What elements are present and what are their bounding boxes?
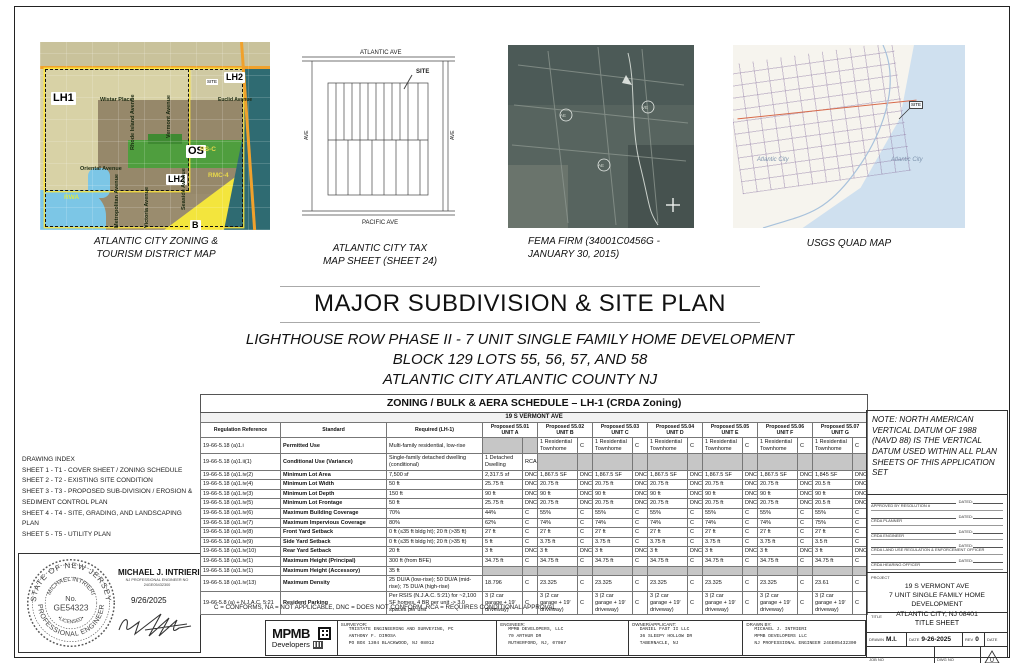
proposed-value: 3 ft: [593, 547, 633, 557]
proposed-value: 44%: [483, 509, 523, 519]
approval-label: CRDA HEARING OFFICER: [871, 563, 1003, 570]
zoning-table-address: 19 S VERMONT AVE: [201, 412, 868, 422]
engineer-line: RUTHERFORD, NJ, 07087: [508, 641, 625, 648]
proposed-value: 3 (2 car garage + 19' driveway): [703, 592, 743, 615]
zoning-map-caption: ATLANTIC CITY ZONING & TOURISM DISTRICT …: [75, 236, 237, 261]
table-col-header: Standard: [281, 422, 387, 437]
svg-text:AE: AE: [598, 163, 604, 168]
conformance-status: C: [798, 576, 813, 592]
proposed-value: 25.75 ft: [483, 499, 523, 509]
proposed-value: 74%: [703, 518, 743, 528]
svg-text:•LICENSED•: •LICENSED•: [56, 615, 85, 625]
approval-block: DATED:CRDA PLANNER: [871, 512, 1003, 526]
proposed-value: 1,867.5 SF: [648, 470, 688, 480]
approval-block: DATED:CRDA LAND USE REGULATION & ENFORCE…: [871, 541, 1003, 555]
proposed-value: 3.75 ft: [758, 537, 798, 547]
surveyor-line: TRISTATE ENGINEERING AND SURVEYING, PC: [349, 627, 493, 634]
proposed-value: 23.325: [648, 576, 688, 592]
tax-map: ATLANTIC AVE PACIFIC AVE SITE AVE AVE: [300, 45, 457, 227]
conformance-status: C: [633, 592, 648, 615]
tax-map-pacific-ave: PACIFIC AVE: [362, 220, 398, 226]
conformance-status: C: [688, 592, 703, 615]
table-row: 19-66-5.18 (a)1.iv(1)Maximum Height (Acc…: [201, 566, 868, 576]
owner-line: TABERNACLE, NJ: [640, 641, 740, 648]
conformance-status: C: [633, 438, 648, 454]
proposed-value: 74%: [648, 518, 688, 528]
proposed-value: 3.75 ft: [593, 537, 633, 547]
conformance-status: DNC: [523, 489, 538, 499]
proposed-value: 20.75 ft: [703, 480, 743, 490]
proposed-value: 20.75 ft: [648, 480, 688, 490]
engineer-line: 70 ARTHUR DR: [508, 634, 625, 641]
conformance-status: DNC: [578, 547, 593, 557]
tax-map-left-ave: AVE: [304, 130, 310, 140]
table-row: 19-66-5.18 (a)1.iv(13)Maximum Density25 …: [201, 576, 868, 592]
job-number-row: JOB NO202505 DWG NOT1 0: [867, 647, 1007, 663]
proposed-value: 20.75 ft: [538, 499, 578, 509]
conformance-status: C: [633, 509, 648, 519]
conformance-status: C: [578, 518, 593, 528]
sheet-title-block: TITLE TITLE SHEET: [867, 613, 1007, 633]
drawn-by-info: DRAWN BY:MICHAEL J. INTRIERIMPMB DEVELOP…: [743, 621, 865, 655]
proposed-value: 23.325: [538, 576, 578, 592]
zoning-map: LH1 LH2 OS LH2 B SITE Wistar Place Eucli…: [40, 42, 270, 230]
conformance-status: C: [688, 528, 703, 538]
conformance-status: C: [798, 556, 813, 566]
conformance-status: DNC: [743, 489, 758, 499]
conformance-status: C: [633, 576, 648, 592]
drawing-index-item: SHEET 1 - T1 - COVER SHEET / ZONING SCHE…: [22, 466, 200, 477]
drawing-index: DRAWING INDEX SHEET 1 - T1 - COVER SHEET…: [22, 455, 200, 541]
proposed-value: 20.5 ft: [813, 480, 853, 490]
conformance-status: C: [578, 556, 593, 566]
conformance-status: C: [578, 528, 593, 538]
table-row: 19-66-5.18 (a)1.iv(3)Minimum Lot Depth15…: [201, 489, 868, 499]
conformance-status: C: [688, 537, 703, 547]
approval-label: APPROVED BY RESOLUTION #: [871, 504, 1003, 511]
proposed-value: 23.325: [593, 576, 633, 592]
conformance-status: DNC: [743, 547, 758, 557]
owner-line: DANIEL FAST II LLC: [640, 627, 740, 634]
conformance-status: C: [523, 528, 538, 538]
drawn_by-line: MPMB DEVELOPERS LLC: [754, 634, 862, 641]
usgs-city-label-2: Atlantic City: [891, 157, 923, 163]
conformance-status: DNC: [798, 480, 813, 490]
proposed-value: 1,867.5 SF: [538, 470, 578, 480]
zone-label-lh1: LH1: [51, 92, 76, 105]
conformance-status: DNC: [798, 470, 813, 480]
conformance-status: C: [523, 518, 538, 528]
conformance-status: DNC: [578, 489, 593, 499]
proposed-value: 3 ft: [758, 547, 798, 557]
drawn_by-line: NJ PROFESSIONAL ENGINEER 24GE05432300: [754, 641, 862, 648]
table-col-header: Regulation Reference: [201, 422, 281, 437]
proposed-value: 3.75 ft: [538, 537, 578, 547]
proposed-value: 27 ft: [703, 528, 743, 538]
conformance-status: DNC: [523, 547, 538, 557]
proposed-value: 90 ft: [813, 489, 853, 499]
table-row: 19-66-5.18 (a)1.iPermitted UseMulti-fami…: [201, 438, 868, 454]
proposed-value: 20.75 ft: [538, 480, 578, 490]
proposed-value: 74%: [593, 518, 633, 528]
table-row: 19-66-5.18 (a)1.iv(2)Minimum Lot Area7,5…: [201, 470, 868, 480]
proposed-value: 3.75 ft: [648, 537, 688, 547]
proposed-value: 25.75 ft: [483, 480, 523, 490]
proposed-value: 90 ft: [648, 489, 688, 499]
table-unit-header: Proposed 55.05 UNIT E: [703, 422, 758, 437]
usgs-site-label: SITE: [909, 101, 923, 109]
conformance-status: DNC: [688, 480, 703, 490]
proposed-value: 55%: [758, 509, 798, 519]
delta-rev: 0: [990, 657, 994, 663]
conformance-status: C: [523, 509, 538, 519]
approval-signature-blocks: DATED:APPROVED BY RESOLUTION #DATED:CRDA…: [867, 495, 1007, 573]
conformance-status: C: [523, 576, 538, 592]
conformance-status: C: [743, 592, 758, 615]
conformance-status: C: [688, 509, 703, 519]
proposed-value: 1 Residential Townhome: [538, 438, 578, 454]
proposed-value: 90 ft: [593, 489, 633, 499]
conformance-status: C: [578, 509, 593, 519]
project-block: PROJECT 19 S VERMONT AVE 7 UNIT SINGLE F…: [867, 573, 1007, 613]
conformance-status: C: [743, 528, 758, 538]
conformance-status: DNC: [633, 470, 648, 480]
proposed-value: 55%: [703, 509, 743, 519]
proposed-value: 74%: [538, 518, 578, 528]
zone-label-rwa: RWA: [64, 194, 79, 201]
usgs-map: SITE Atlantic City Atlantic City: [733, 45, 965, 228]
drawing-index-item: SHEET 2 - T2 - EXISTING SITE CONDITION: [22, 476, 200, 487]
conformance-status: C: [633, 528, 648, 538]
conformance-status: C: [578, 592, 593, 615]
zone-label-rmc4: RMC-4: [208, 172, 229, 179]
revision-row: DRAWNM.I. DATE9-26-2025 REV0 DATE: [867, 633, 1007, 647]
fema-map-drawing: AEAEVE: [508, 45, 694, 228]
proposed-value: 27 ft: [538, 528, 578, 538]
proposed-value: 3.5 ft: [813, 537, 853, 547]
conformance-status: C: [688, 438, 703, 454]
conformance-status: DNC: [688, 547, 703, 557]
tax-map-caption: ATLANTIC CITY TAX MAP SHEET (SHEET 24): [315, 243, 445, 268]
table-col-header: Required (LH-1): [387, 422, 483, 437]
plan-sheet: LH1 LH2 OS LH2 B SITE Wistar Place Eucli…: [0, 0, 1024, 663]
conformance-status: DNC: [798, 489, 813, 499]
drawing-index-item: SHEET 4 - T4 - SITE, GRADING, AND LANDSC…: [22, 509, 200, 530]
conformance-status: DNC: [523, 499, 538, 509]
tax-map-atlantic-ave: ATLANTIC AVE: [360, 50, 401, 56]
conformance-status: C: [798, 537, 813, 547]
fema-map-caption: FEMA FIRM (34001C0456G - JANUARY 30, 201…: [528, 236, 708, 261]
conformance-status: RCA: [523, 454, 538, 470]
table-row: 19-66-5.18 (a)1.iv(9)Side Yard Setback0 …: [201, 537, 868, 547]
proposed-value: 55%: [813, 509, 853, 519]
proposed-value: 3 (2 car garage + 19' driveway): [758, 592, 798, 615]
proposed-value: 5 ft: [483, 537, 523, 547]
proposed-value: 20.75 ft: [758, 480, 798, 490]
conformance-status: DNC: [688, 499, 703, 509]
proposed-value: 3 ft: [648, 547, 688, 557]
conformance-status: DNC: [578, 499, 593, 509]
conformance-status: DNC: [688, 470, 703, 480]
proposed-value: 3 (2 car garage + 19' driveway): [648, 592, 688, 615]
seal-license-number: GE54323: [54, 603, 89, 612]
proposed-value: 90 ft: [758, 489, 798, 499]
pe-signature: [115, 606, 195, 640]
conformance-status: C: [523, 556, 538, 566]
proposed-value: 20.75 ft: [648, 499, 688, 509]
conformance-status: C: [798, 528, 813, 538]
proposed-value: 34.75 ft: [648, 556, 688, 566]
proposed-value: 1,867.5 SF: [758, 470, 798, 480]
proposed-value: 74%: [758, 518, 798, 528]
proposed-value: 27 ft: [648, 528, 688, 538]
table-row: 19-66-5.18 (a)1.iv(10)Rear Yard Setback2…: [201, 547, 868, 557]
conformance-status: DNC: [743, 499, 758, 509]
table-unit-header: Proposed 55.01 UNIT A: [483, 422, 538, 437]
conformance-status: C: [743, 556, 758, 566]
table-unit-header: Proposed 55.07 UNIT G: [813, 422, 868, 437]
table-unit-header: Proposed 55.02 UNIT B: [538, 422, 593, 437]
proposed-value: 34.75 ft: [703, 556, 743, 566]
revision-delta-icon: 0: [981, 647, 1003, 663]
street-metropolitan-avenue: Metropolitan Avenue: [114, 170, 120, 228]
proposed-value: 90 ft: [538, 489, 578, 499]
table-row: 19-66-5.18 (a)1.iv(5)Minimum Lot Frontag…: [201, 499, 868, 509]
conformance-status: C: [688, 576, 703, 592]
conformance-status: DNC: [743, 470, 758, 480]
project-subtitle-2: BLOCK 129 LOTS 55, 56, 57, AND 58: [160, 351, 880, 368]
table-row: 19-66-5.18 (a)1.iv(7)Maximum Impervious …: [201, 518, 868, 528]
proposed-value: 62%: [483, 518, 523, 528]
street-rhode-island-avenue: Rhode Island Avenue: [130, 80, 136, 150]
conformance-status: C: [743, 537, 758, 547]
proposed-value: 23.325: [703, 576, 743, 592]
table-unit-header: Proposed 55.03 UNIT C: [593, 422, 648, 437]
conformance-status: DNC: [633, 547, 648, 557]
proposed-value: 3 ft: [538, 547, 578, 557]
zoning-bulk-table: ZONING / BULK & AERA SCHEDULE – LH-1 (CR…: [200, 394, 867, 615]
proposed-value: 27 ft: [758, 528, 798, 538]
proposed-value: 27 ft: [483, 528, 523, 538]
site-marker: SITE: [206, 79, 218, 85]
tax-map-drawing: ATLANTIC AVE PACIFIC AVE SITE AVE AVE: [300, 45, 457, 227]
table-row: 19-66-5.18 (a)1.iv(6)Maximum Building Co…: [201, 509, 868, 519]
proposed-value: 1 Residential Townhome: [593, 438, 633, 454]
pe-stamp-seal: STATE OF NEW JERSEY PROFESSIONAL ENGINEE…: [25, 557, 117, 649]
svg-text:AE: AE: [560, 113, 566, 118]
proposed-value: 20.75 ft: [593, 480, 633, 490]
conformance-status: C: [798, 438, 813, 454]
proposed-value: 3 ft: [813, 547, 853, 557]
engineer-line: MPMB DEVELOPERS, LLC: [508, 627, 625, 634]
conformance-status: C: [578, 438, 593, 454]
pe-license-text: NJ PROFESSIONAL ENGINEER NO24GE05432300: [118, 578, 196, 588]
proposed-value: 1 Residential Townhome: [703, 438, 743, 454]
conformance-status: DNC: [633, 499, 648, 509]
surveyor-line: PO BOX 1304 BLACKWOOD, NJ 08012: [349, 641, 493, 648]
conformance-status: C: [578, 537, 593, 547]
pe-name: MICHAEL J. INTRIERI: [118, 568, 200, 577]
drawing-index-item: SHEET 3 - T3 - PROPOSED SUB-DIVISION / E…: [22, 487, 200, 508]
conformance-status: C: [798, 518, 813, 528]
zone-label-rsc: RS-C: [200, 146, 216, 153]
proposed-value: 1 Residential Townhome: [813, 438, 853, 454]
conformance-status: C: [688, 556, 703, 566]
conformance-status: C: [798, 509, 813, 519]
engineer-info: ENGINEER:MPMB DEVELOPERS, LLC70 ARTHUR D…: [497, 621, 629, 655]
project-subtitle-1: LIGHTHOUSE ROW PHASE II - 7 UNIT SINGLE …: [160, 331, 880, 348]
proposed-value: 34.75 ft: [538, 556, 578, 566]
drawing-index-title: DRAWING INDEX: [22, 455, 200, 466]
street-vermont-avenue: Vermont Avenue: [166, 72, 172, 138]
proposed-value: 55%: [538, 509, 578, 519]
approval-block: DATED:APPROVED BY RESOLUTION #: [871, 497, 1003, 511]
proposed-value: 1,867.5 SF: [593, 470, 633, 480]
proposed-value: 55%: [648, 509, 688, 519]
street-euclid-avenue: Euclid Avenue: [218, 97, 252, 103]
zone-label-lh2-top: LH2: [224, 72, 245, 83]
seal-date: 9/26/2025: [131, 596, 167, 605]
proposed-value: 34.75 ft: [593, 556, 633, 566]
approval-block: DATED:CRDA ENGINEER: [871, 527, 1003, 541]
approval-label: CRDA LAND USE REGULATION & ENFORCEMENT O…: [871, 548, 1003, 555]
drawing-index-item: SHEET 5 - T5 - UTILITY PLAN: [22, 530, 200, 541]
project-subtitle-3: ATLANTIC CITY ATLANTIC COUNTY NJ: [160, 371, 880, 388]
street-seaside-avenue: Seaside Avenue: [181, 146, 187, 210]
zoning-table-title: ZONING / BULK & AERA SCHEDULE – LH-1 (CR…: [201, 395, 868, 413]
conformance-status: DNC: [523, 480, 538, 490]
conformance-status: C: [743, 518, 758, 528]
conformance-status: DNC: [633, 489, 648, 499]
proposed-value: 3 ft: [703, 547, 743, 557]
table-row: 19-66-5.18 (a)1.iv(4)Minimum Lot Width50…: [201, 480, 868, 490]
proposed-value: 20.75 ft: [758, 499, 798, 509]
drawn-by-initials: M.I.: [886, 636, 897, 643]
fema-map: AEAEVE: [508, 45, 694, 228]
proposed-value: 34.75 ft: [758, 556, 798, 566]
usgs-map-caption: USGS QUAD MAP: [768, 238, 930, 251]
approval-label: CRDA ENGINEER: [871, 534, 1003, 541]
conformance-status: DNC: [798, 499, 813, 509]
conformance-status: C: [523, 537, 538, 547]
approval-block: DATED:CRDA HEARING OFFICER: [871, 556, 1003, 570]
conformance-status: C: [688, 518, 703, 528]
table-row: 19-66-5.18 (a)1.ii(1)Conditional Use (Va…: [201, 454, 868, 470]
surveyor-line: ANTHONY F. DIROSA: [349, 634, 493, 641]
proposed-value: 20.75 ft: [703, 499, 743, 509]
datum-note-text: NOTE: NORTH AMERICAN VERTICAL DATUM OF 1…: [872, 415, 1002, 479]
title-block-column: NOTE: NORTH AMERICAN VERTICAL DATUM OF 1…: [866, 410, 1008, 658]
street-victoria-avenue: Victoria Avenue: [144, 176, 150, 228]
proposed-value: 34.75 ft: [483, 556, 523, 566]
sheet-date: 9-26-2025: [921, 636, 951, 643]
proposed-value: 20.75 ft: [593, 499, 633, 509]
proposed-value: 1,867.5 SF: [703, 470, 743, 480]
proposed-value: 20.5 ft: [813, 499, 853, 509]
table-unit-header: Proposed 55.06 UNIT F: [758, 422, 813, 437]
proposed-value: 34.75 ft: [813, 556, 853, 566]
conformance-status: DNC: [523, 470, 538, 480]
conformance-status: C: [798, 592, 813, 615]
table-row: 19-66-5.18 (a)1.iv(8)Front Yard Setback0…: [201, 528, 868, 538]
table-footnote: C = CONFORMS, NA = NOT APPLICABLE, DNC =…: [214, 604, 556, 611]
proposed-value: 90 ft: [703, 489, 743, 499]
conformance-status: C: [633, 518, 648, 528]
usgs-city-label-1: Atlantic City: [757, 157, 789, 163]
firm-info-bar: MPMB Developers SURVEYOR:TRISTATE ENGINE…: [265, 620, 866, 656]
conformance-status: C: [743, 576, 758, 592]
proposed-value: 23.325: [758, 576, 798, 592]
conformance-status: DNC: [578, 470, 593, 480]
conformance-status: C: [633, 556, 648, 566]
drawn_by-line: MICHAEL J. INTRIERI: [754, 627, 862, 634]
seal-no-label: No.: [65, 594, 76, 603]
tax-map-site-label: SITE: [416, 69, 429, 75]
conformance-status: C: [578, 576, 593, 592]
proposed-value: 2,317.5 sf: [483, 470, 523, 480]
proposed-value: 18.796: [483, 576, 523, 592]
approval-label: CRDA PLANNER: [871, 519, 1003, 526]
table-unit-header: Proposed 55.04 UNIT D: [648, 422, 703, 437]
proposed-value: 55%: [593, 509, 633, 519]
street-wistar-place: Wistar Place: [100, 97, 133, 103]
proposed-value: 3 (2 car garage + 19' driveway): [813, 592, 853, 615]
svg-text:VE: VE: [642, 105, 648, 110]
proposed-value: 90 ft: [483, 489, 523, 499]
sheet-title: TITLE SHEET: [871, 620, 1003, 627]
mpmb-logo: MPMB Developers: [266, 621, 338, 655]
table-row: 19-66-5.18 (a)1.iv(1)Maximum Height (Pri…: [201, 556, 868, 566]
proposed-value: 1,845 SF: [813, 470, 853, 480]
proposed-value: 75%: [813, 518, 853, 528]
building-icon: [313, 627, 331, 649]
zone-label-b: B: [190, 220, 201, 230]
tax-map-right-ave: AVE: [450, 130, 456, 140]
proposed-value: 27 ft: [813, 528, 853, 538]
engineer-seal-block: STATE OF NEW JERSEY PROFESSIONAL ENGINEE…: [18, 553, 201, 653]
conformance-status: DNC: [633, 480, 648, 490]
conformance-status: C: [633, 537, 648, 547]
proposed-value: 3 ft: [483, 547, 523, 557]
rev-number: 0: [975, 636, 979, 643]
conformance-status: DNC: [578, 480, 593, 490]
proposed-value: 3.75 ft: [703, 537, 743, 547]
proposed-value: 23.61: [813, 576, 853, 592]
conformance-status: C: [743, 509, 758, 519]
conformance-status: DNC: [798, 547, 813, 557]
proposed-value: 1 Detached Dwelling: [483, 454, 523, 470]
proposed-value: 3 (2 car garage + 19' driveway): [593, 592, 633, 615]
conformance-status: C: [743, 438, 758, 454]
conformance-status: DNC: [688, 489, 703, 499]
conformance-status: DNC: [743, 480, 758, 490]
owner-applicant-info: OWNER/APPLICANT:DANIEL FAST II LLC36 SLE…: [629, 621, 744, 655]
proposed-value: 1 Residential Townhome: [758, 438, 798, 454]
proposed-value: 27 ft: [593, 528, 633, 538]
project-tag: PROJECT: [871, 575, 1003, 580]
proposed-value: 1 Residential Townhome: [648, 438, 688, 454]
surveyor-info: SURVEYOR:TRISTATE ENGINEERING AND SURVEY…: [338, 621, 497, 655]
owner-line: 36 SLEEPY HOLLOW DR: [640, 634, 740, 641]
page-title: MAJOR SUBDIVISION & SITE PLAN: [280, 286, 760, 323]
datum-note-box: NOTE: NORTH AMERICAN VERTICAL DATUM OF 1…: [867, 411, 1007, 495]
zoning-table-grid: ZONING / BULK & AERA SCHEDULE – LH-1 (CR…: [200, 394, 868, 615]
